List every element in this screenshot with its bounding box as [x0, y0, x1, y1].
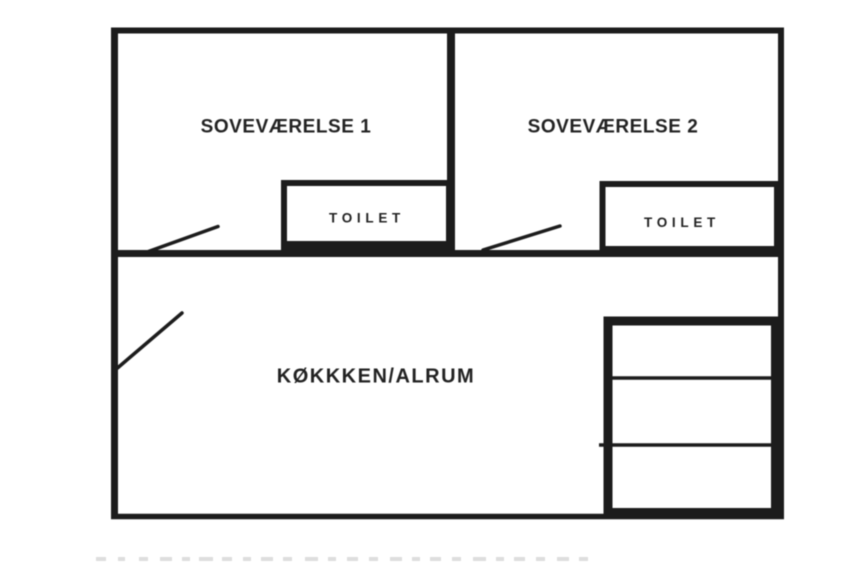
- svg-text:TOILET: TOILET: [644, 215, 720, 230]
- svg-text:TOILET: TOILET: [329, 211, 405, 226]
- svg-text:KØKKKEN/ALRUM: KØKKKEN/ALRUM: [277, 366, 475, 388]
- svg-text:SOVEVÆRELSE 2: SOVEVÆRELSE 2: [528, 117, 699, 138]
- svg-text:SOVEVÆRELSE 1: SOVEVÆRELSE 1: [201, 117, 372, 138]
